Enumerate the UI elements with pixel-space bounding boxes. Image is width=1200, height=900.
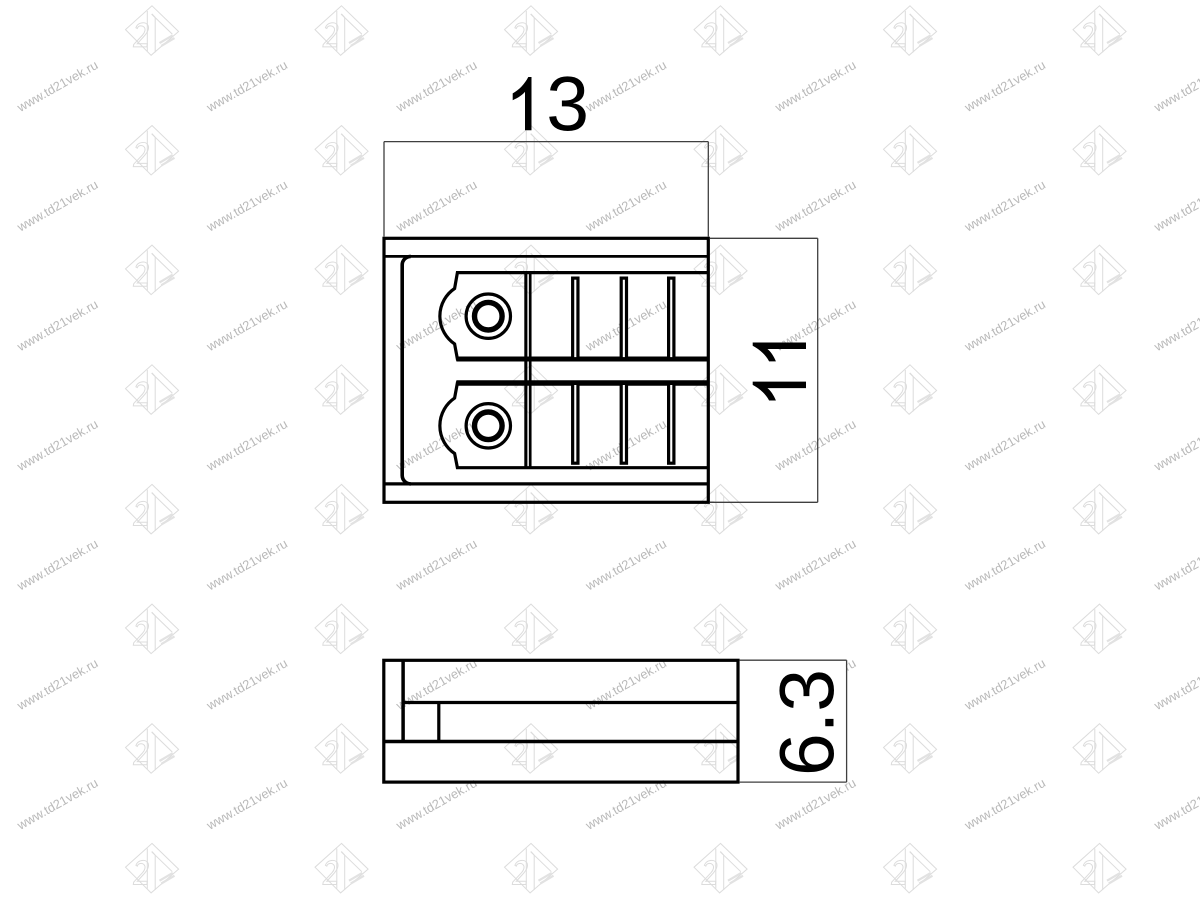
svg-text:6.3: 6.3 — [765, 669, 851, 776]
svg-text:3: 3 — [546, 62, 589, 148]
